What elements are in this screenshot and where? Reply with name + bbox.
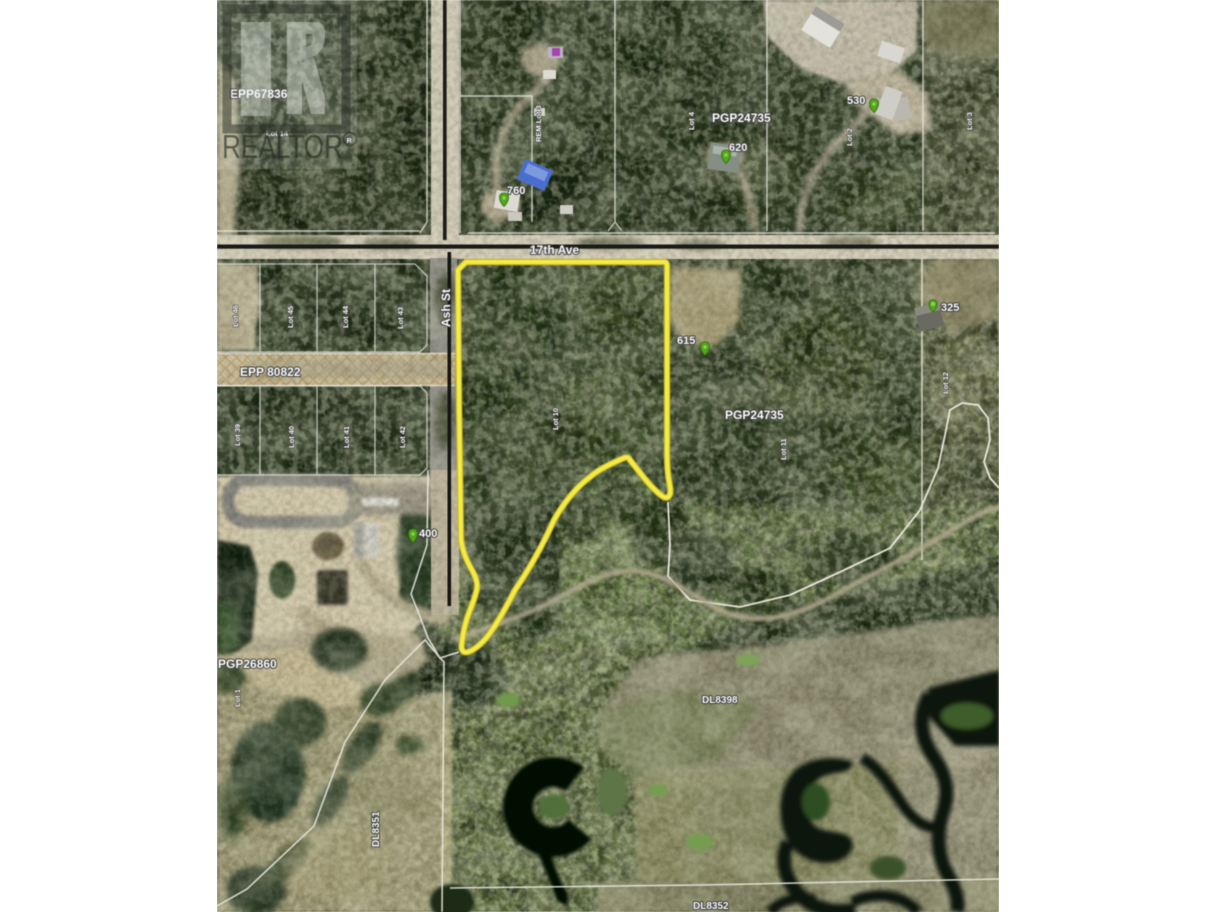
svg-text:530: 530 [847,95,865,107]
svg-text:Lot 43: Lot 43 [396,307,405,329]
svg-text:Lot 2: Lot 2 [845,128,854,146]
svg-text:Lot 1: Lot 1 [233,689,242,707]
svg-text:615: 615 [677,335,695,347]
svg-text:EPP 80822: EPP 80822 [240,365,301,379]
svg-text:REM Lot 3: REM Lot 3 [534,105,543,142]
svg-text:DL8398: DL8398 [702,695,738,706]
svg-text:REALTOR: REALTOR [222,128,343,165]
svg-text:Lot 45: Lot 45 [286,306,295,328]
svg-text:Ash St: Ash St [439,289,453,327]
svg-text:Lot 12: Lot 12 [941,372,950,394]
svg-text:PGP24735: PGP24735 [712,111,771,125]
svg-text:Lot 46: Lot 46 [231,305,240,327]
svg-text:Lot 44: Lot 44 [341,305,350,328]
svg-text:400: 400 [419,528,437,540]
svg-text:760: 760 [507,185,525,197]
svg-text:Lot 10: Lot 10 [551,408,560,430]
svg-text:PGP24735: PGP24735 [725,408,784,422]
svg-text:325: 325 [941,302,959,314]
svg-text:Lot 4: Lot 4 [687,111,696,130]
svg-text:Lot 41: Lot 41 [342,426,351,448]
svg-text:Lot 40: Lot 40 [287,426,296,448]
svg-text:Lot 42: Lot 42 [398,426,407,448]
svg-text:Lot 11: Lot 11 [779,438,788,460]
svg-text:R: R [347,136,353,145]
svg-text:DL8352: DL8352 [693,901,729,912]
svg-text:Lot 39: Lot 39 [233,424,242,446]
svg-text:620: 620 [729,142,747,154]
svg-text:Lot 3: Lot 3 [965,112,974,130]
svg-text:PGP26860: PGP26860 [218,657,277,671]
svg-text:17th Ave: 17th Ave [530,243,579,257]
svg-text:DL8351: DL8351 [371,811,382,847]
